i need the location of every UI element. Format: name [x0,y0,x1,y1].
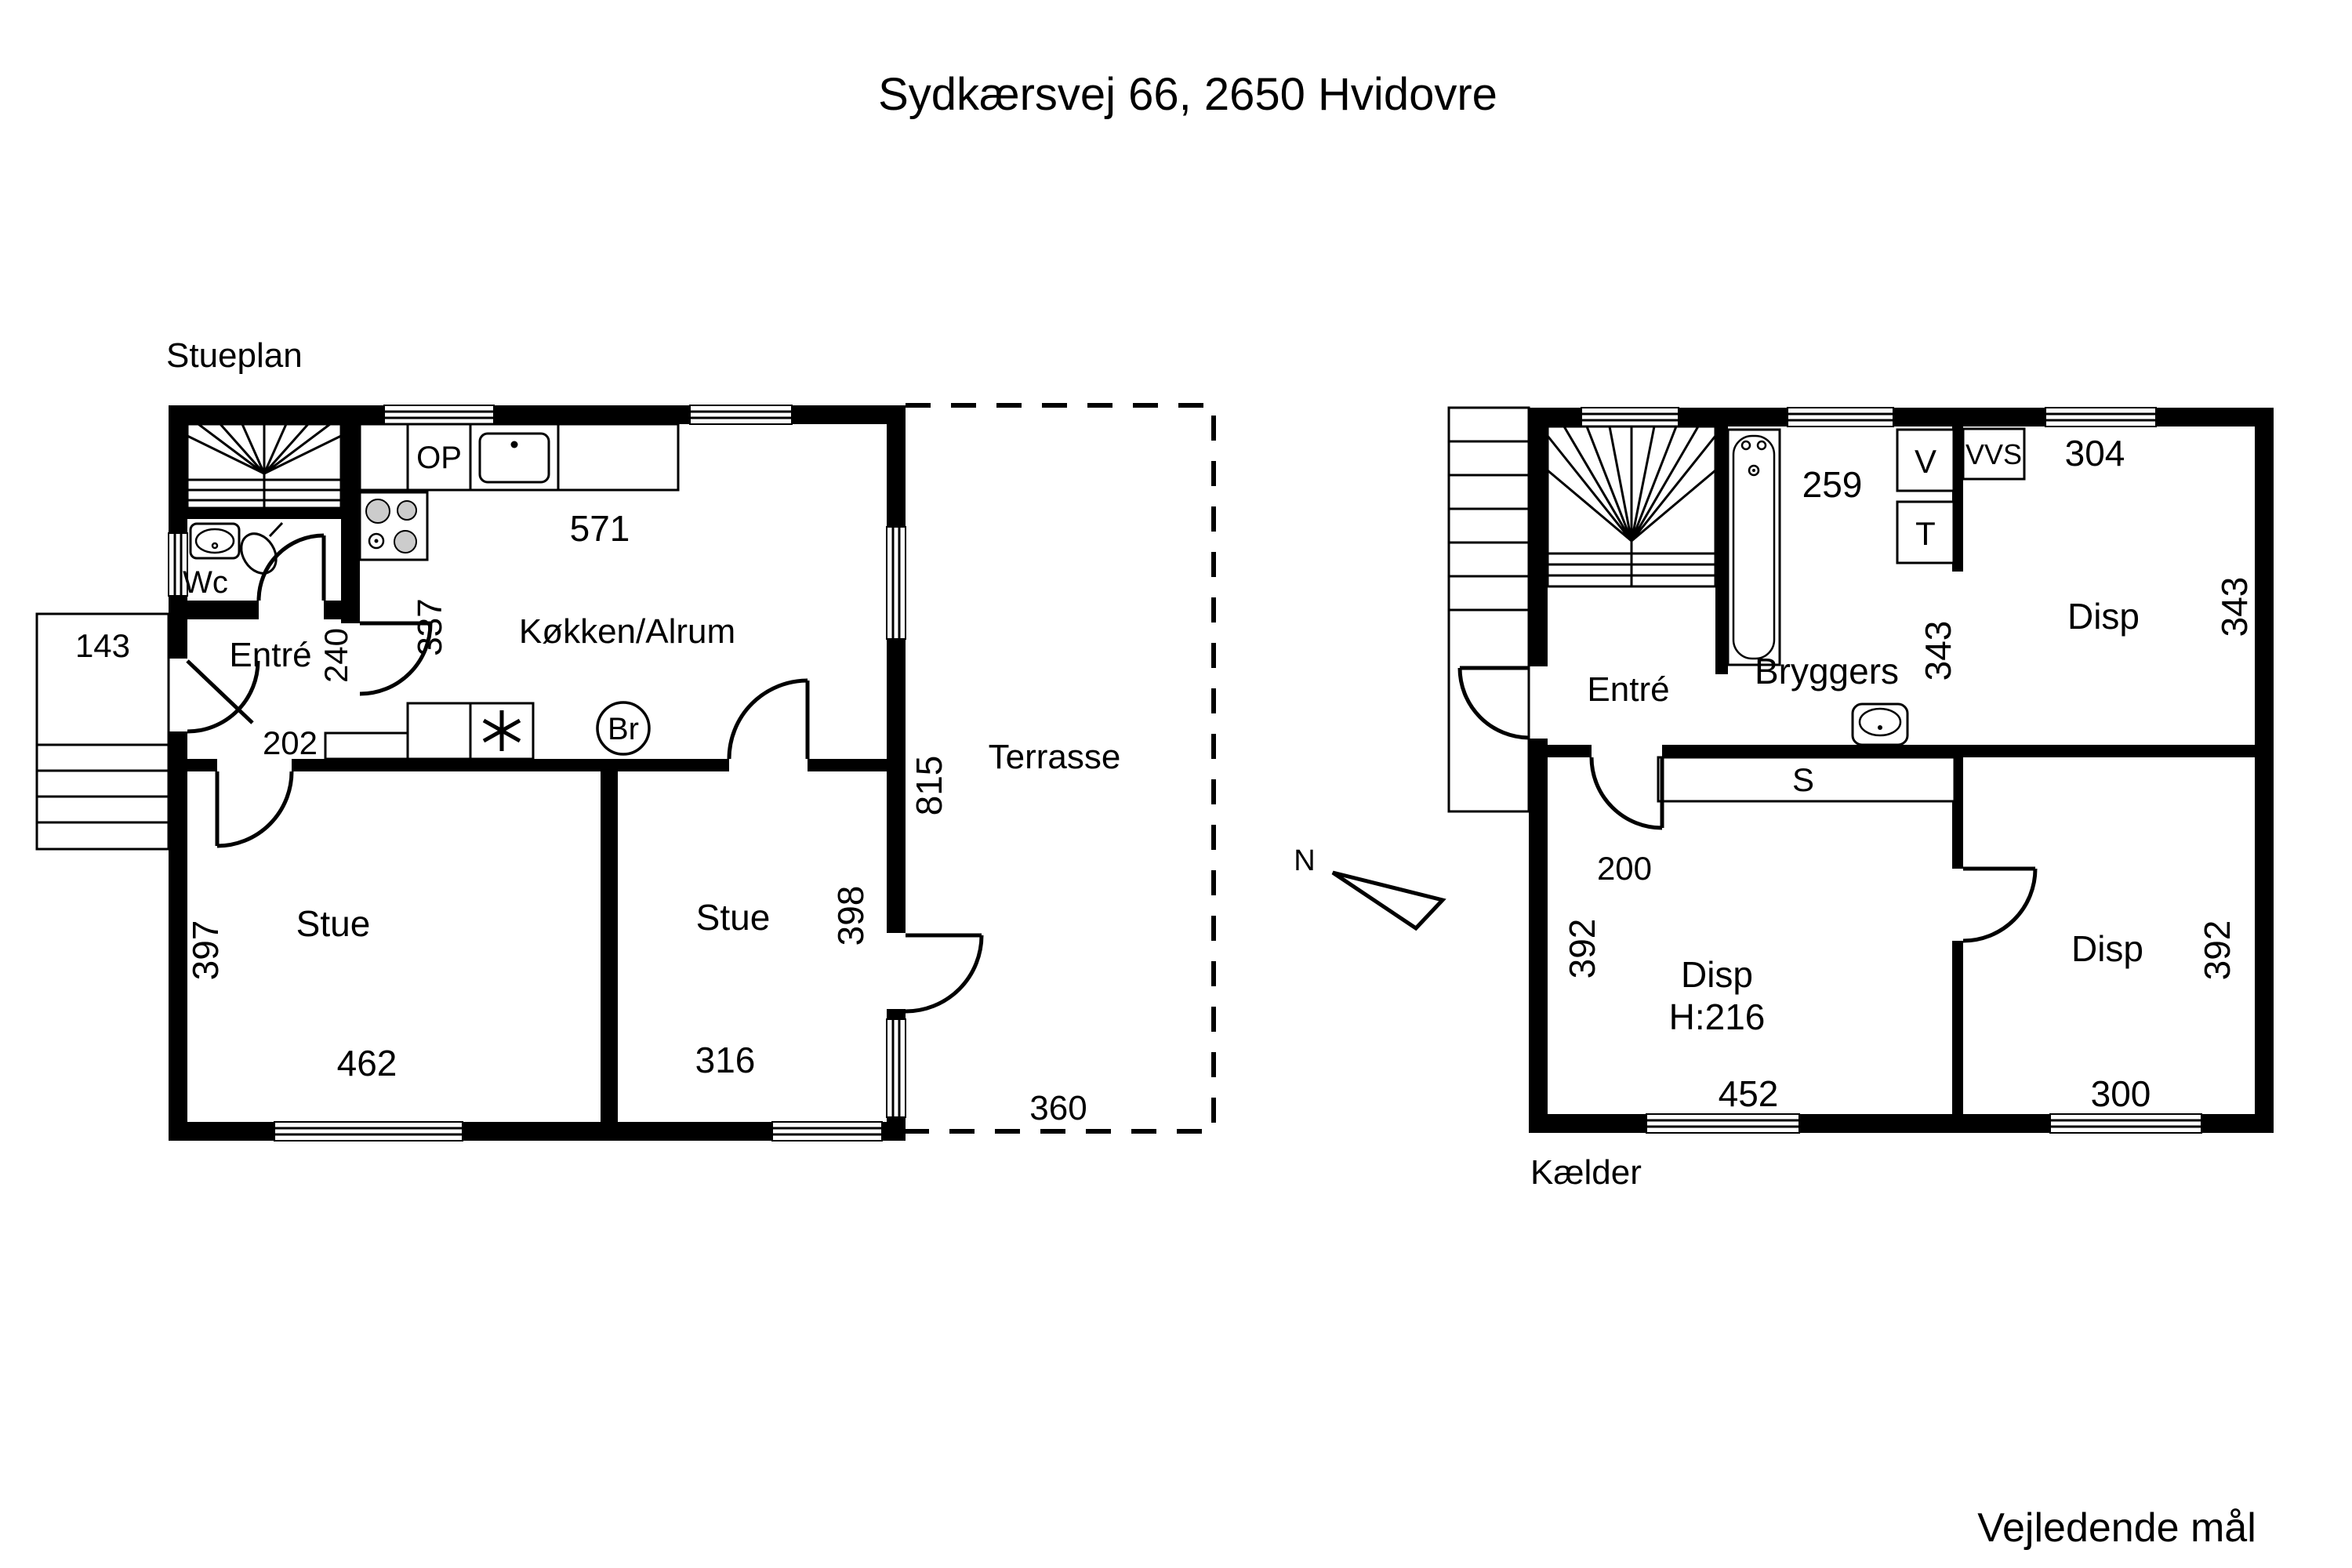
dim-stue-right-width: 316 [695,1040,756,1080]
wall-disp-divider-b [1952,941,1963,1114]
dim-terrasse-width: 360 [1029,1089,1087,1127]
wall-stue-divider [601,771,618,1122]
bryggers-sink-icon [1853,704,1907,745]
wall-entre-east [1715,426,1728,674]
doorway-terrasse [887,933,906,1009]
window-top-2 [1788,408,1893,426]
op-label: OP [416,441,462,475]
window-right-kitchen [887,527,906,639]
closet-box: S [1658,757,1955,801]
br-label: Br [608,712,639,746]
wall-top [169,405,906,424]
outdoor-basement-stairs [1449,408,1529,811]
wall-left [169,405,187,1141]
bathtub-icon [1728,430,1780,665]
interior-stairs [187,424,341,508]
window-bottom-2 [2050,1114,2201,1133]
dim-disp-top-width: 304 [2065,433,2125,474]
vvs-label: VVS [1965,438,2022,470]
wc-sink-icon [191,524,239,558]
dim-stue-right-depth: 398 [830,886,871,946]
dim-disp-main-depth: 392 [1562,919,1602,979]
doorway-entrance [169,659,187,731]
wall-stue-north-c [808,759,887,771]
dryer-box: T [1897,502,1954,563]
dim-landing: 143 [75,627,130,664]
window-top-3 [2045,408,2156,426]
compass-north-label: N [1294,844,1315,877]
page-title: Sydkærsvej 66, 2650 Hvidovre [878,69,1497,120]
wall-wc-south-b [324,601,341,619]
plan-label-kaelder: Kælder [1530,1153,1642,1192]
plan-label-stueplan: Stueplan [166,336,303,375]
room-label-stue-left: Stue [296,903,371,944]
doorway-basement-entrance [1529,666,1548,739]
dim-disp-right-width: 300 [2091,1073,2151,1114]
stove-icon [360,492,427,560]
wall-mid-b [1662,745,2255,757]
window-bottom-1 [1646,1114,1799,1133]
room-label-stue-right: Stue [696,897,771,938]
room-label-bryggers: Bryggers [1755,651,1899,691]
wall-wc-south-a [187,601,259,619]
washer-label: V [1915,443,1936,480]
floorplan-canvas: Sydkærsvej 66, 2650 Hvidovre [0,0,2352,1568]
dim-disp-main-width: 452 [1719,1073,1779,1114]
dim-kokken-depth: 337 [411,598,449,655]
wall-stue-north-a [187,759,217,771]
washer-box: V [1897,430,1954,491]
dim-entre-width: 202 [263,724,318,761]
floorplan-page: Sydkærsvej 66, 2650 Hvidovre [0,0,2352,1568]
kitchen-sink-icon [480,434,549,482]
room-label-disp-main-height: H:216 [1669,996,1766,1037]
window-right-stue [887,1019,906,1117]
dim-disp-right-depth: 392 [2197,920,2238,981]
room-label-kokken: Køkken/Alrum [519,612,735,651]
page-background [0,0,2352,1568]
room-label-entre: Entré [229,636,311,674]
dim-terrasse-depth: 815 [909,756,949,816]
wall-right [2255,408,2274,1133]
dim-stue-left-width: 462 [337,1043,397,1083]
room-label-entre: Entré [1587,670,1669,709]
dim-disp-top-depth: 343 [2214,577,2255,637]
vvs-box: VVS [1963,429,2024,479]
dim-entre-depth: 240 [318,628,354,683]
dim-kokken-width: 571 [570,508,630,549]
window-bottom-2 [772,1122,882,1141]
room-label-wc: Wc [183,565,228,600]
dim-stue-left-depth: 397 [185,920,226,981]
br-stove-icon: Br [597,702,649,754]
closet-label: S [1792,761,1814,798]
window-top-1 [384,405,494,424]
room-label-disp-main: Disp [1681,954,1753,995]
window-top-2 [690,405,792,424]
dim-bryggers-width: 259 [1802,464,1863,505]
wall-left [1529,408,1548,1133]
wall-hall-kitchen [341,424,360,623]
window-top-1 [1581,408,1679,426]
window-bottom-1 [274,1122,463,1141]
wall-under-stairs [187,508,341,519]
interior-stairs [1548,426,1715,586]
dryer-label: T [1915,515,1936,552]
footer-note: Vejledende mål [1977,1505,2256,1551]
room-label-disp-top: Disp [2067,596,2140,637]
dim-entre-width: 200 [1597,850,1652,887]
dim-bryggers-depth: 343 [1918,621,1958,681]
room-label-disp-right: Disp [2071,928,2143,969]
wall-mid-a [1548,745,1592,757]
room-label-terrasse: Terrasse [989,738,1121,776]
wall-stue-north-b [292,759,729,771]
